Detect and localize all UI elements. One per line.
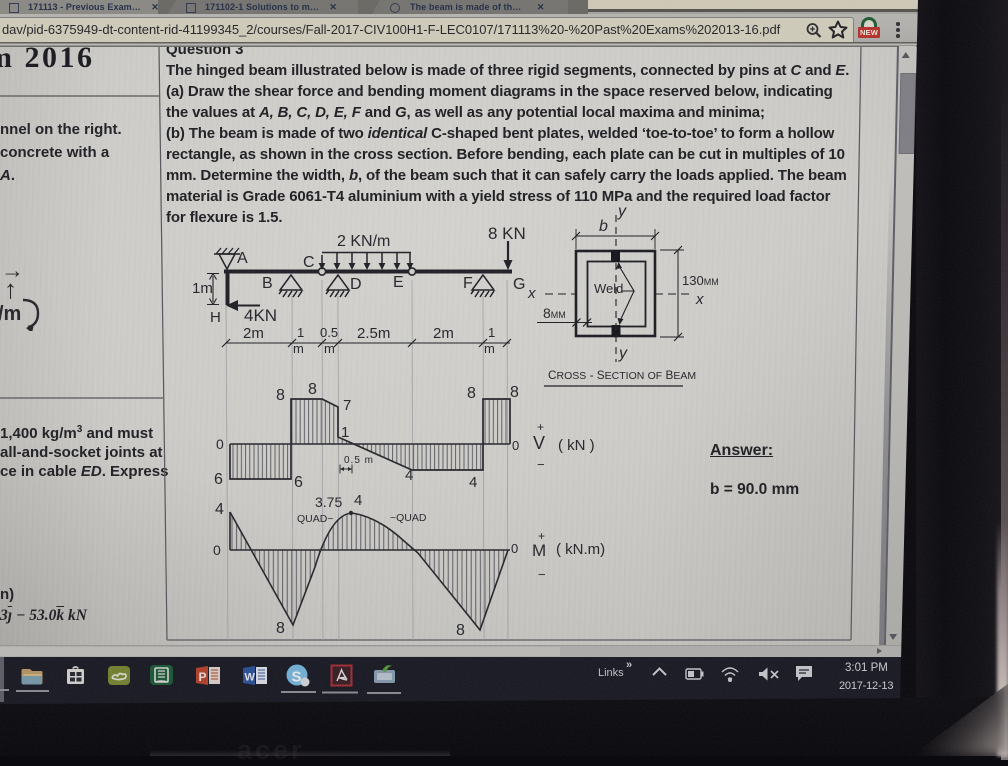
svg-text:2017-12-13: 2017-12-13: [839, 680, 893, 692]
svg-text:W: W: [245, 672, 256, 684]
svg-text:3:01 PM: 3:01 PM: [845, 662, 888, 674]
svg-text:P: P: [199, 670, 207, 684]
svg-text:»: »: [626, 659, 632, 671]
svg-text:S: S: [292, 669, 302, 686]
svg-text:Links: Links: [598, 667, 624, 679]
